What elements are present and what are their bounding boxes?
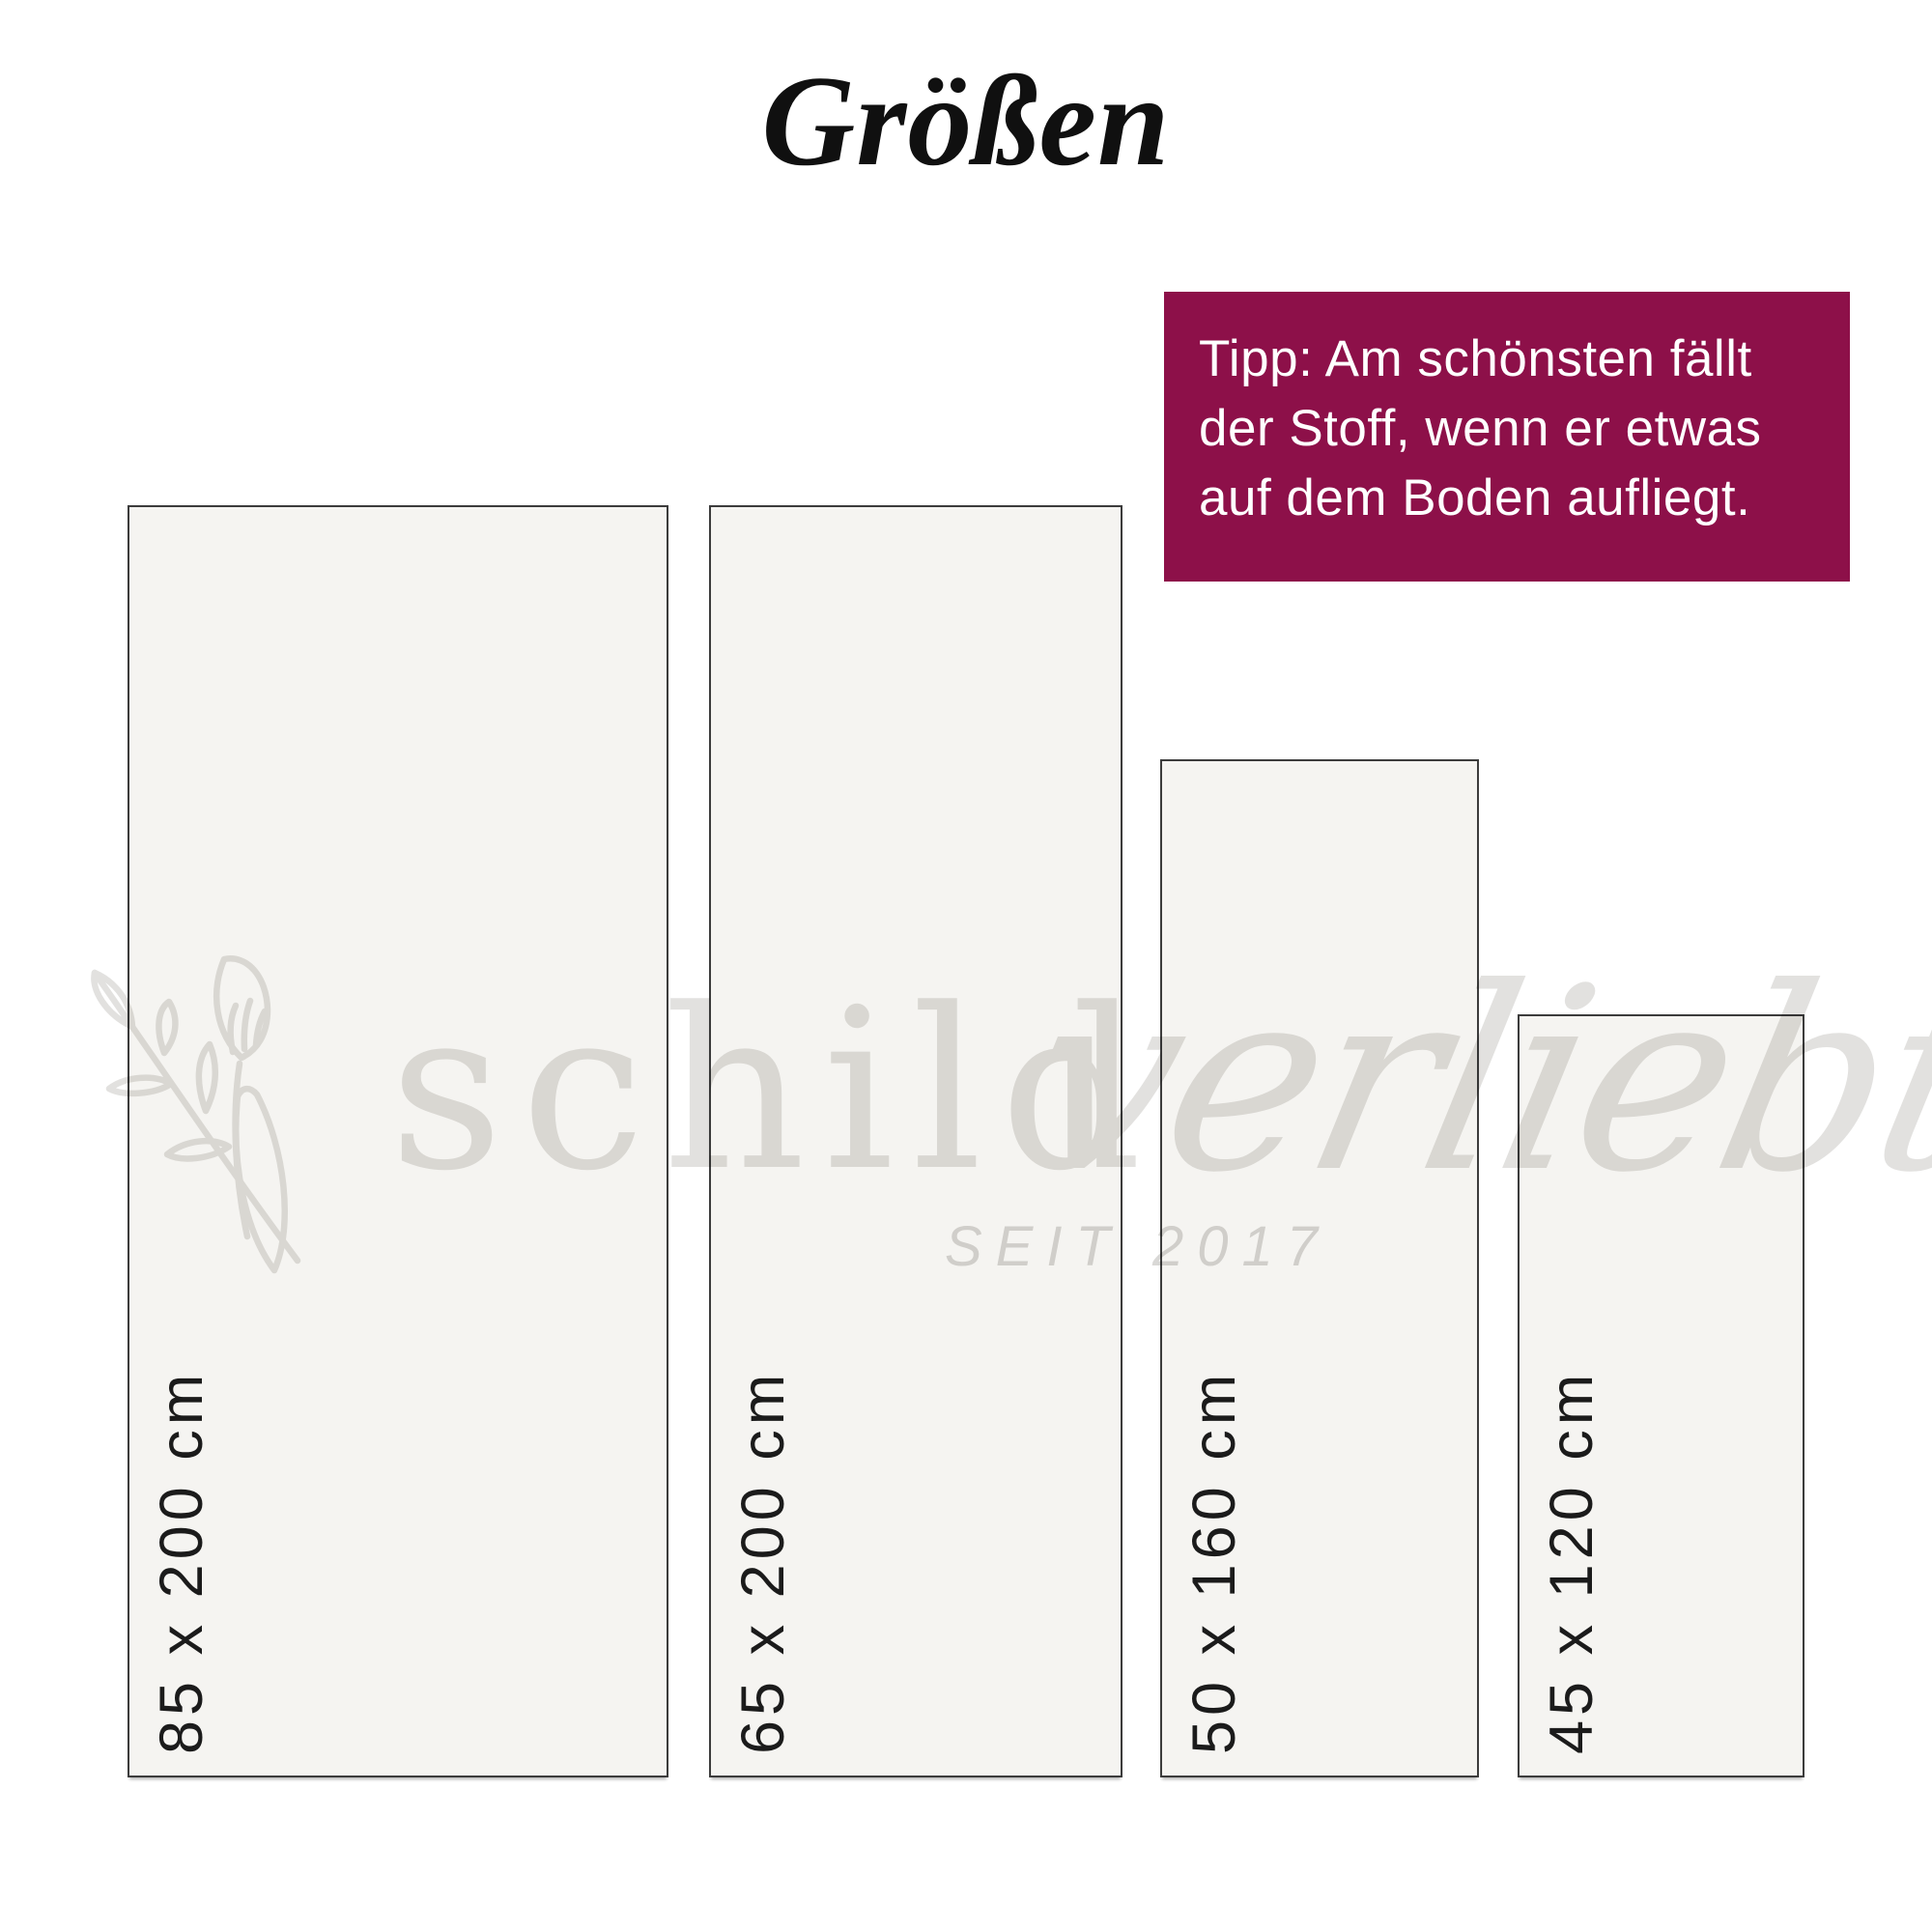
tip-line: Tipp: Am schönsten fällt [1199, 325, 1815, 394]
tip-line: auf dem Boden aufliegt. [1199, 464, 1815, 533]
size-rect-50x160: 50 x 160 cm [1160, 759, 1479, 1777]
page-title: Größen [0, 56, 1932, 185]
size-rect-65x200: 65 x 200 cm [709, 505, 1122, 1777]
size-label: 45 x 120 cm [1542, 1370, 1603, 1754]
size-rect-45x120: 45 x 120 cm [1518, 1014, 1804, 1777]
size-label: 85 x 200 cm [152, 1370, 213, 1754]
size-rect-85x200: 85 x 200 cm [128, 505, 668, 1777]
tip-box: Tipp: Am schönsten fällt der Stoff, wenn… [1164, 292, 1850, 582]
size-label: 50 x 160 cm [1184, 1370, 1245, 1754]
size-infographic: Größen Tipp: Am schönsten fällt der Stof… [0, 0, 1932, 1932]
size-label: 65 x 200 cm [733, 1370, 794, 1754]
tip-line: der Stoff, wenn er etwas [1199, 394, 1815, 464]
